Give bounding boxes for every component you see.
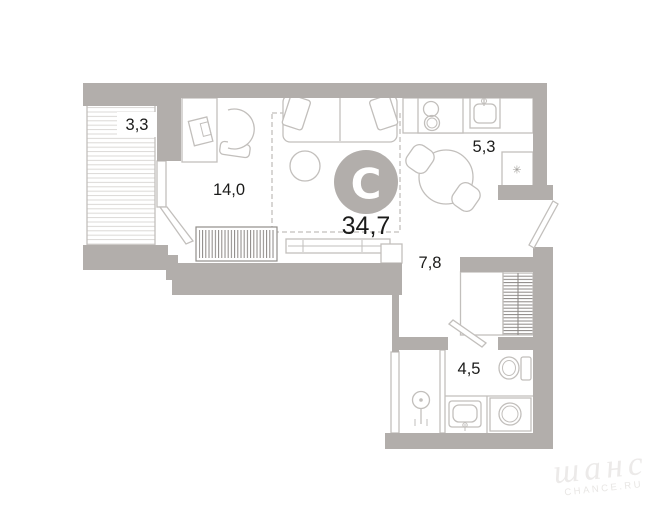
bathroom-door: [449, 320, 486, 347]
sofa: [282, 95, 399, 142]
desk-chair: [228, 109, 254, 149]
wall-balcony-top: [83, 83, 161, 106]
logo-letter: C: [351, 160, 382, 209]
wall-niche-top: [460, 257, 533, 272]
shower: [413, 392, 430, 427]
washing-machine: [490, 398, 531, 431]
logo-badge: C: [334, 150, 398, 214]
wall-entry-jamb: [498, 185, 553, 200]
entrance-door: [529, 201, 558, 248]
wall-kitchen-right: [533, 98, 547, 185]
wall-right: [533, 247, 553, 449]
room-label-total: 34,7: [342, 212, 391, 240]
balcony-window-wall: [157, 161, 166, 207]
balcony-door: [160, 207, 193, 244]
tv-console: [286, 239, 390, 253]
bathroom-sink: [449, 401, 481, 431]
radiator: [196, 227, 277, 261]
hall-furniture: [461, 272, 534, 335]
wall-under-balcony: [83, 245, 168, 270]
floor-plan: ✳: [0, 0, 670, 528]
room-label-kitchen: 5,3: [473, 138, 496, 156]
room-label-living: 14,0: [213, 181, 245, 199]
wall-balcony-divider: [157, 98, 181, 161]
duct-shaft: [381, 244, 402, 263]
wall-living-bottom: [172, 263, 402, 295]
snowflake-icon: ✳: [512, 164, 521, 177]
wall-bath-top-left: [395, 337, 448, 350]
fridge: ✳: [502, 152, 533, 186]
room-label-balcony: 3,3: [126, 116, 149, 134]
wall-bath-top-right: [498, 337, 533, 350]
watermark: шанс CHANCE.RU: [552, 445, 651, 500]
bathroom-outer-wall: [391, 352, 399, 433]
floor-plan-drawing: ✳: [0, 0, 670, 528]
room-label-bathroom: 4,5: [458, 360, 481, 378]
closet-niche: [461, 272, 504, 335]
stove: [418, 98, 463, 133]
wall-bottom: [385, 433, 553, 449]
toilet: [499, 357, 531, 380]
shower-partition: [440, 350, 445, 433]
pouf: [290, 151, 320, 181]
room-label-hall: 7,8: [419, 254, 442, 272]
kitchen-sink: [470, 98, 500, 128]
